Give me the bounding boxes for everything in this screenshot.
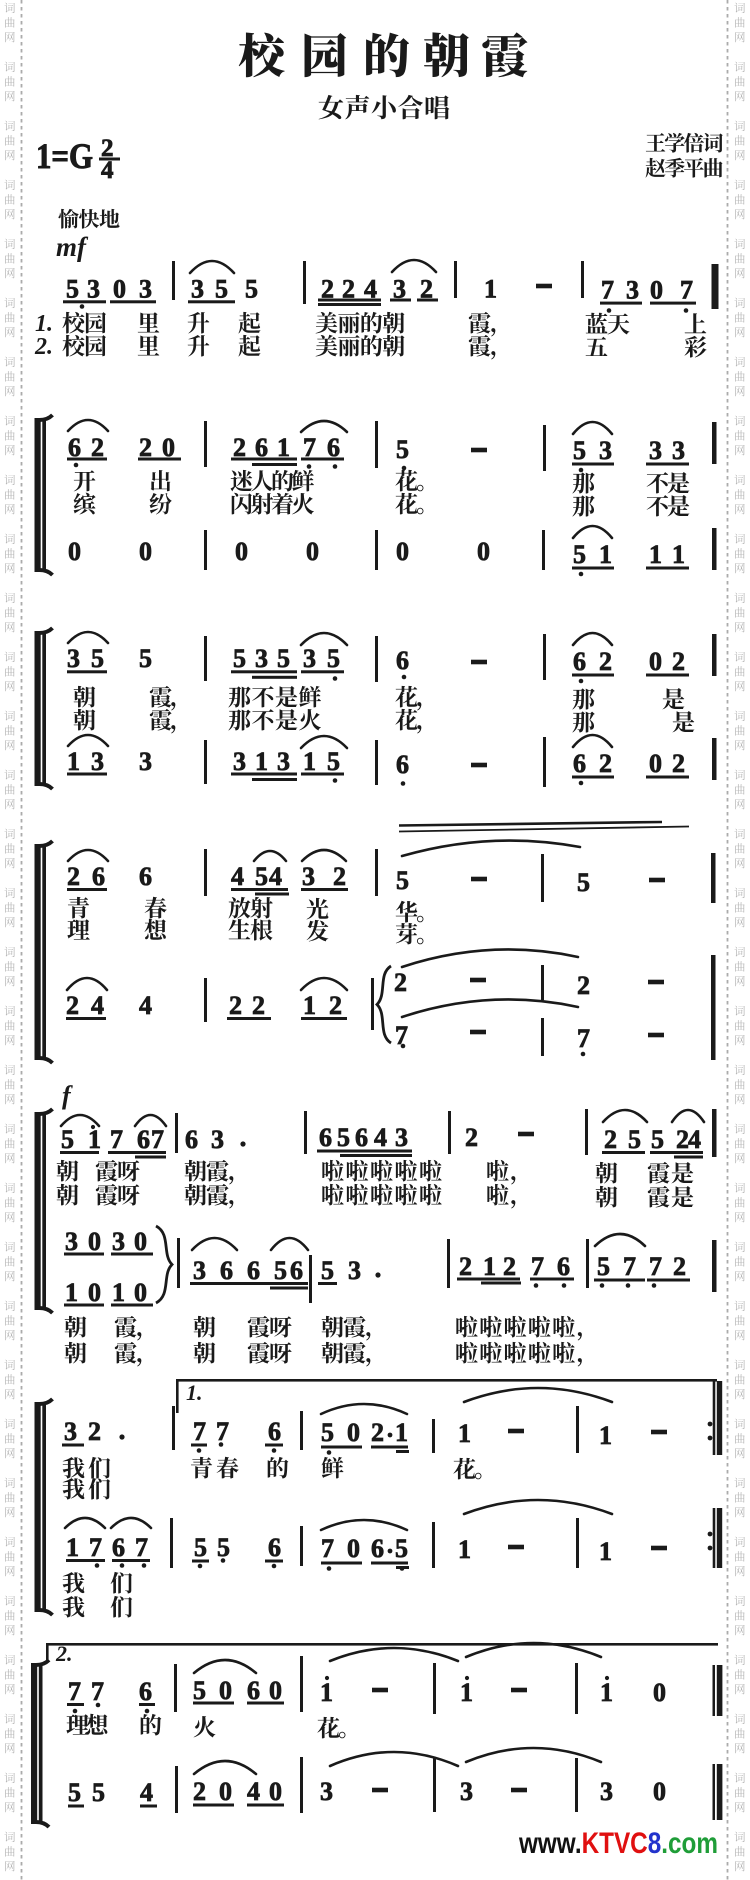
svg-text:5: 5 (274, 1256, 287, 1285)
svg-text:0: 0 (219, 1777, 232, 1806)
svg-text:4: 4 (374, 1123, 387, 1152)
svg-text:5: 5 (217, 1533, 230, 1562)
svg-text:5: 5 (395, 1534, 408, 1563)
svg-text:3: 3 (320, 1777, 333, 1806)
svg-text:7: 7 (649, 1252, 662, 1281)
svg-text:1: 1 (303, 991, 316, 1020)
svg-text:2.: 2. (34, 334, 53, 360)
svg-text:6: 6 (396, 750, 409, 779)
svg-text:2: 2 (193, 1777, 206, 1806)
svg-text:5: 5 (277, 644, 290, 673)
svg-text:5: 5 (573, 540, 586, 569)
svg-text:7: 7 (91, 1677, 104, 1706)
svg-text:7: 7 (193, 1417, 206, 1446)
svg-text:2: 2 (599, 647, 612, 676)
svg-text:5: 5 (651, 1125, 664, 1154)
svg-text:1=G: 1=G (36, 136, 93, 176)
svg-text:3: 3 (139, 275, 152, 304)
svg-text:0: 0 (88, 1227, 101, 1256)
svg-text:6: 6 (290, 1256, 303, 1285)
svg-text:0: 0 (347, 1534, 360, 1563)
svg-text:7: 7 (680, 276, 693, 305)
svg-text:5: 5 (139, 644, 152, 673)
svg-text:2: 2 (394, 968, 407, 997)
svg-text:2: 2 (604, 1125, 617, 1154)
svg-text:7: 7 (601, 276, 614, 305)
svg-text:3: 3 (395, 1123, 408, 1152)
svg-text:1: 1 (320, 1678, 333, 1707)
svg-text:5: 5 (68, 1778, 81, 1807)
svg-text:6: 6 (220, 1256, 233, 1285)
svg-text:5: 5 (337, 1123, 350, 1152)
svg-text:2.: 2. (55, 1641, 73, 1666)
svg-text:1: 1 (484, 275, 497, 304)
svg-text:0: 0 (219, 1676, 232, 1705)
svg-text:1: 1 (649, 540, 662, 569)
svg-text:6: 6 (573, 647, 586, 676)
svg-text:0: 0 (235, 537, 248, 566)
svg-text:3: 3 (191, 275, 204, 304)
svg-text:1: 1 (395, 1418, 408, 1447)
svg-text:2: 2 (329, 991, 342, 1020)
svg-text:2: 2 (371, 1418, 384, 1447)
svg-text:6: 6 (247, 1676, 260, 1705)
svg-text:2: 2 (67, 862, 80, 891)
svg-text:2: 2 (673, 1252, 686, 1281)
svg-text:5: 5 (193, 1676, 206, 1705)
svg-text:5: 5 (321, 1418, 334, 1447)
svg-text:5: 5 (577, 868, 590, 897)
svg-text:4: 4 (688, 1125, 701, 1154)
svg-text:0: 0 (269, 1676, 282, 1705)
svg-text:5: 5 (194, 1533, 207, 1562)
svg-text:6: 6 (268, 1533, 281, 1562)
svg-text:6: 6 (247, 1256, 260, 1285)
svg-text:5: 5 (597, 1252, 610, 1281)
svg-text:2: 2 (88, 1417, 101, 1446)
svg-text:0: 0 (88, 1278, 101, 1307)
svg-text:2: 2 (66, 991, 79, 1020)
svg-text:4: 4 (269, 862, 282, 891)
svg-text:www.KTVC8.com: www.KTVC8.com (518, 1827, 718, 1860)
svg-text:1: 1 (255, 747, 268, 776)
svg-text:3: 3 (600, 1777, 613, 1806)
svg-text:2: 2 (333, 862, 346, 891)
svg-text:2: 2 (465, 1123, 478, 1152)
svg-text:5: 5 (327, 644, 340, 673)
svg-text:6: 6 (557, 1252, 570, 1281)
svg-text:1: 1 (112, 1278, 125, 1307)
svg-text:mf: mf (56, 232, 89, 262)
svg-text:0: 0 (650, 276, 663, 305)
svg-text:6: 6 (139, 1677, 152, 1706)
svg-text:6: 6 (268, 1417, 281, 1446)
svg-text:3: 3 (67, 644, 80, 673)
svg-text:7: 7 (321, 1534, 334, 1563)
svg-text:3: 3 (255, 644, 268, 673)
svg-text:1: 1 (460, 1678, 473, 1707)
svg-text:3: 3 (193, 1256, 206, 1285)
svg-text:6: 6 (139, 862, 152, 891)
svg-text:1.: 1. (186, 1380, 203, 1405)
svg-text:3: 3 (112, 1227, 125, 1256)
svg-text:5: 5 (327, 747, 340, 776)
svg-text:4: 4 (247, 1777, 260, 1806)
svg-text:2: 2 (599, 749, 612, 778)
svg-text:6: 6 (396, 646, 409, 675)
svg-text:1: 1 (600, 1678, 613, 1707)
svg-text:1: 1 (67, 747, 80, 776)
svg-text:1: 1 (458, 1419, 471, 1448)
svg-text:0: 0 (134, 1227, 147, 1256)
svg-text:1: 1 (599, 1537, 612, 1566)
svg-text:1: 1 (65, 1278, 78, 1307)
svg-text:5: 5 (245, 275, 258, 304)
svg-text:3: 3 (348, 1256, 361, 1285)
svg-text:4: 4 (231, 862, 244, 891)
svg-text:3: 3 (64, 1417, 77, 1446)
svg-text:0: 0 (306, 537, 319, 566)
svg-text:7: 7 (89, 1533, 102, 1562)
svg-text:6: 6 (112, 1533, 125, 1562)
svg-text:0: 0 (653, 1678, 666, 1707)
svg-text:5: 5 (66, 275, 79, 304)
svg-text:0: 0 (134, 1278, 147, 1307)
svg-text:5: 5 (321, 1256, 334, 1285)
svg-text:0: 0 (68, 537, 81, 566)
svg-text:6: 6 (92, 862, 105, 891)
svg-text:0: 0 (649, 647, 662, 676)
svg-text:5: 5 (396, 435, 409, 464)
svg-text:4: 4 (140, 1778, 153, 1807)
svg-text:6: 6 (137, 1125, 150, 1154)
svg-text:5: 5 (628, 1125, 641, 1154)
svg-text:3: 3 (302, 862, 315, 891)
svg-text:7: 7 (216, 1417, 229, 1446)
svg-text:1: 1 (599, 540, 612, 569)
svg-text:5: 5 (61, 1125, 74, 1154)
svg-text:7: 7 (531, 1252, 544, 1281)
svg-text:3: 3 (672, 436, 685, 465)
svg-text:0: 0 (113, 275, 126, 304)
svg-text:3: 3 (460, 1777, 473, 1806)
svg-text:7: 7 (623, 1252, 636, 1281)
svg-text:6: 6 (185, 1125, 198, 1154)
svg-text:3: 3 (303, 644, 316, 673)
svg-text:0: 0 (653, 1777, 666, 1806)
svg-text:4: 4 (91, 991, 104, 1020)
svg-text:1: 1 (303, 747, 316, 776)
svg-text:7: 7 (110, 1125, 123, 1154)
svg-text:0: 0 (139, 537, 152, 566)
svg-text:2: 2 (503, 1252, 516, 1281)
svg-text:7: 7 (151, 1125, 164, 1154)
svg-text:2: 2 (229, 991, 242, 1020)
svg-text:3: 3 (599, 436, 612, 465)
svg-text:2: 2 (672, 749, 685, 778)
svg-text:7: 7 (135, 1533, 148, 1562)
svg-text:1: 1 (672, 540, 685, 569)
svg-text:3: 3 (233, 747, 246, 776)
svg-text:7: 7 (68, 1677, 81, 1706)
svg-text:3: 3 (91, 747, 104, 776)
svg-text:0: 0 (269, 1777, 282, 1806)
svg-text:0: 0 (477, 537, 490, 566)
svg-text:5: 5 (233, 644, 246, 673)
svg-text:3: 3 (87, 275, 100, 304)
svg-text:2: 2 (252, 991, 265, 1020)
svg-text:5: 5 (396, 866, 409, 895)
svg-text:6: 6 (371, 1534, 384, 1563)
svg-text:3: 3 (277, 747, 290, 776)
svg-text:1: 1 (599, 1421, 612, 1450)
svg-text:4: 4 (139, 991, 152, 1020)
svg-text:1: 1 (88, 1125, 101, 1154)
svg-text:3: 3 (211, 1125, 224, 1154)
svg-text:0: 0 (396, 537, 409, 566)
svg-text:2: 2 (672, 647, 685, 676)
svg-text:3: 3 (626, 276, 639, 305)
svg-text:2: 2 (577, 971, 590, 1000)
svg-text:5: 5 (255, 862, 268, 891)
svg-text:0: 0 (347, 1418, 360, 1447)
svg-text:0: 0 (649, 749, 662, 778)
svg-text:3: 3 (65, 1227, 78, 1256)
svg-text:5: 5 (573, 436, 586, 465)
svg-text:1: 1 (458, 1535, 471, 1564)
svg-text:5: 5 (91, 644, 104, 673)
svg-text:6: 6 (573, 749, 586, 778)
svg-text:1: 1 (66, 1533, 79, 1562)
svg-text:7: 7 (577, 1024, 590, 1053)
svg-text:4: 4 (101, 157, 114, 184)
svg-text:3: 3 (139, 747, 152, 776)
svg-text:6: 6 (355, 1123, 368, 1152)
svg-text:1: 1 (483, 1252, 496, 1281)
svg-text:5: 5 (92, 1778, 105, 1807)
svg-text:3: 3 (649, 436, 662, 465)
svg-text:6: 6 (319, 1123, 332, 1152)
svg-text:5: 5 (215, 275, 228, 304)
svg-text:2: 2 (459, 1252, 472, 1281)
